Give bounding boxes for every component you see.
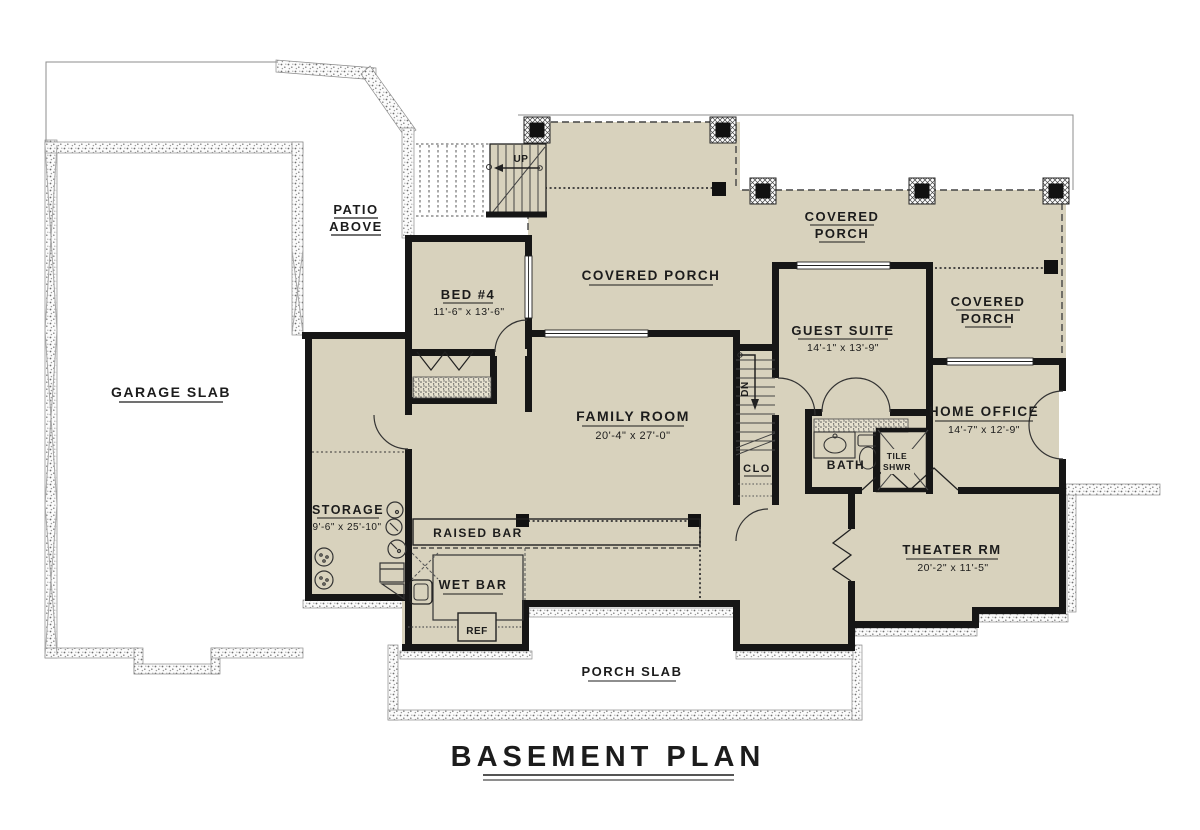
floor-plan-page: GARAGE SLAB PATIO ABOVE BED #4 11'-6" x … [0,0,1200,830]
covered-porch-right-label-1: COVERED [951,294,1026,309]
guest-suite-label: GUEST SUITE [791,323,894,338]
home-office-dims: 14'-7" x 12'-9" [948,424,1020,436]
up-label: UP [514,154,529,165]
wall-x-braces [45,145,303,655]
clo-label: CLO [743,463,771,475]
storage-dims: 9'-6" x 25'-10" [312,522,381,533]
covered-porch-right-label-2: PORCH [961,311,1015,326]
theater-label: THEATER RM [902,542,1001,557]
garage-slab-label: GARAGE SLAB [111,384,231,400]
bed4-label: BED #4 [441,287,496,302]
bed4-dims: 11'-6" x 13'-6" [433,306,504,318]
tile-shwr-label-1: TILE [887,451,907,461]
tile-shwr-label-2: SHWR [883,462,911,472]
bath-label: BATH [827,458,865,472]
patio-above-label-2: ABOVE [329,219,383,234]
dn-label: DN [740,381,751,396]
plan-title: BASEMENT PLAN [451,741,766,773]
covered-porch-mid-label-1: COVERED [805,209,880,224]
theater-dims: 20'-2" x 11'-5" [917,562,988,574]
covered-porch-mid-label-2: PORCH [815,226,869,241]
porch-slab-label: PORCH SLAB [582,664,683,679]
closet-shelf [413,377,491,398]
guest-suite-dims: 14'-1" x 13'-9" [807,342,879,354]
covered-porch-main-label: COVERED PORCH [582,268,721,283]
wet-bar-label: WET BAR [439,578,508,592]
floor-plan-drawing: GARAGE SLAB PATIO ABOVE BED #4 11'-6" x … [0,0,1200,830]
patio-above-label-1: PATIO [333,202,378,217]
storage-label: STORAGE [312,503,384,517]
home-office-label: HOME OFFICE [929,404,1039,419]
family-room-label: FAMILY ROOM [576,408,690,424]
family-room-dims: 20'-4" x 27'-0" [595,430,670,442]
raised-bar-label: RAISED BAR [433,526,523,540]
ref-label: REF [466,626,488,637]
